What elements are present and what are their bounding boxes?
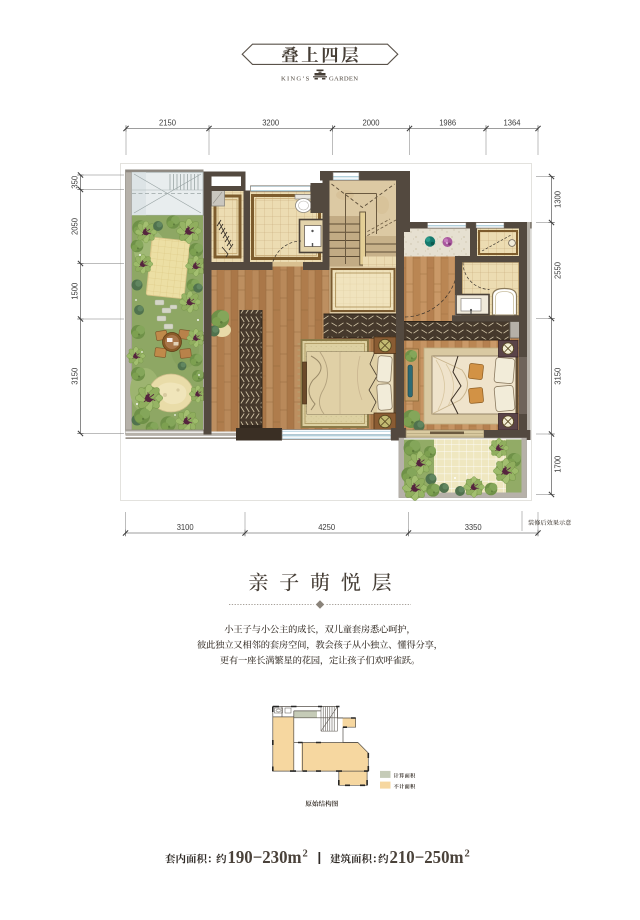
svg-text:2: 2 xyxy=(303,849,308,860)
svg-text:3100: 3100 xyxy=(177,522,194,532)
svg-text:1986: 1986 xyxy=(439,118,456,128)
svg-text:KING’S: KING’S xyxy=(281,76,311,83)
svg-text:4250: 4250 xyxy=(318,522,335,532)
svg-text:2550: 2550 xyxy=(553,262,563,279)
svg-text:190−230m: 190−230m xyxy=(228,847,302,867)
svg-text:2050: 2050 xyxy=(70,218,80,235)
svg-text:350: 350 xyxy=(70,175,80,188)
svg-text:1364: 1364 xyxy=(504,118,521,128)
svg-text:2: 2 xyxy=(465,849,470,860)
svg-text:1300: 1300 xyxy=(553,191,563,208)
svg-text:3200: 3200 xyxy=(262,118,279,128)
svg-text:3350: 3350 xyxy=(465,522,482,532)
svg-text:1700: 1700 xyxy=(553,455,563,472)
svg-text:2150: 2150 xyxy=(159,118,176,128)
svg-text:3150: 3150 xyxy=(70,367,80,384)
svg-text:3150: 3150 xyxy=(553,367,563,384)
svg-text:GARDEN: GARDEN xyxy=(329,76,358,83)
svg-text:2000: 2000 xyxy=(363,118,380,128)
svg-text:210−250m: 210−250m xyxy=(390,847,464,867)
svg-text:1500: 1500 xyxy=(70,282,80,299)
